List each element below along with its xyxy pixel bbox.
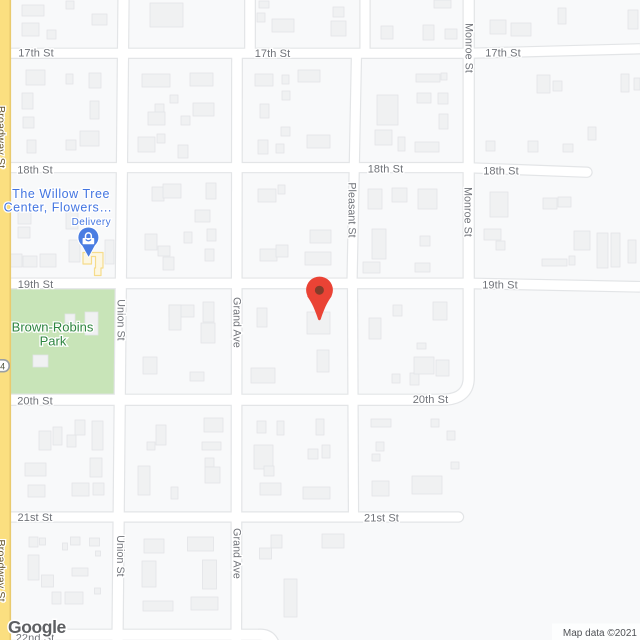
svg-text:Google: Google <box>8 617 67 637</box>
svg-text:Broadway St: Broadway St <box>0 106 7 168</box>
svg-text:20th St: 20th St <box>17 395 53 407</box>
svg-text:Union St: Union St <box>114 535 126 576</box>
svg-text:4: 4 <box>0 361 5 371</box>
svg-text:17th St: 17th St <box>485 47 521 59</box>
svg-text:17th St: 17th St <box>255 48 291 60</box>
svg-text:n Center, Flowers…: n Center, Flowers… <box>0 200 112 214</box>
svg-text:Brown-Robins: Brown-Robins <box>12 320 94 335</box>
svg-text:Monroe St: Monroe St <box>462 187 474 237</box>
svg-text:18th St: 18th St <box>368 163 404 175</box>
svg-text:Park: Park <box>40 334 67 349</box>
svg-text:Pleasant St: Pleasant St <box>346 182 358 237</box>
svg-text:Broadway St: Broadway St <box>0 539 7 601</box>
svg-text:19th St: 19th St <box>18 279 54 291</box>
svg-text:21st St: 21st St <box>364 513 399 525</box>
svg-text:19th St: 19th St <box>482 279 518 291</box>
svg-text:Grand Ave: Grand Ave <box>231 528 243 579</box>
svg-text:Grand Ave: Grand Ave <box>231 297 243 348</box>
svg-text:20th St: 20th St <box>413 394 449 406</box>
svg-text:Monroe St: Monroe St <box>462 23 474 73</box>
svg-text:Delivery: Delivery <box>72 217 111 228</box>
svg-text:17th St: 17th St <box>18 48 54 60</box>
svg-text:21st St: 21st St <box>18 512 53 524</box>
svg-text:The Willow Tree: The Willow Tree <box>12 187 110 201</box>
svg-text:Map data ©2021: Map data ©2021 <box>563 628 638 639</box>
svg-text:18th St: 18th St <box>17 164 53 176</box>
svg-text:18th St: 18th St <box>483 165 519 177</box>
svg-text:Union St: Union St <box>115 299 127 340</box>
